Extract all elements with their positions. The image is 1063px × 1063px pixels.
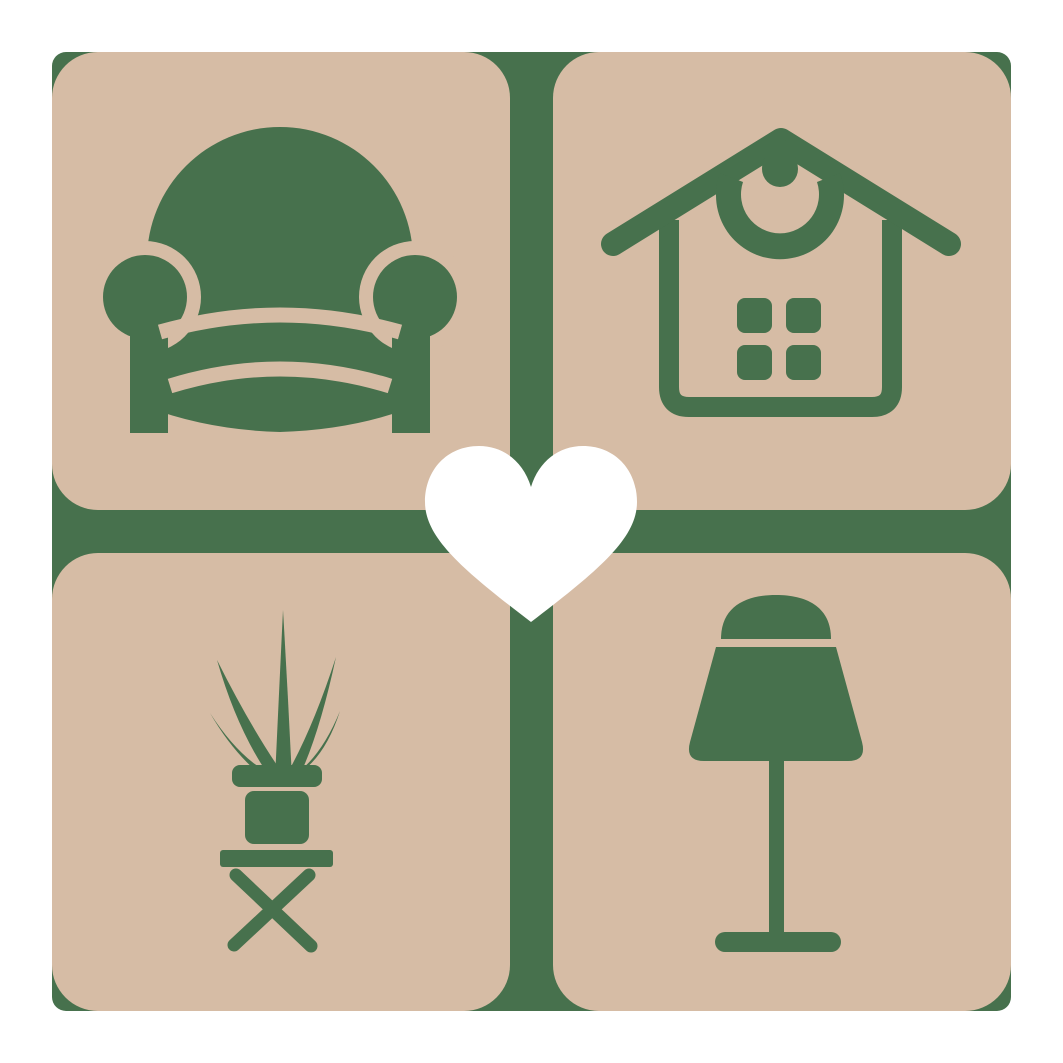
house-icon	[553, 52, 1011, 510]
tile-armchair	[52, 52, 510, 510]
heart-icon	[423, 446, 639, 624]
tile-house	[553, 52, 1011, 510]
armchair-icon	[52, 52, 510, 510]
logo-canvas	[0, 0, 1063, 1063]
